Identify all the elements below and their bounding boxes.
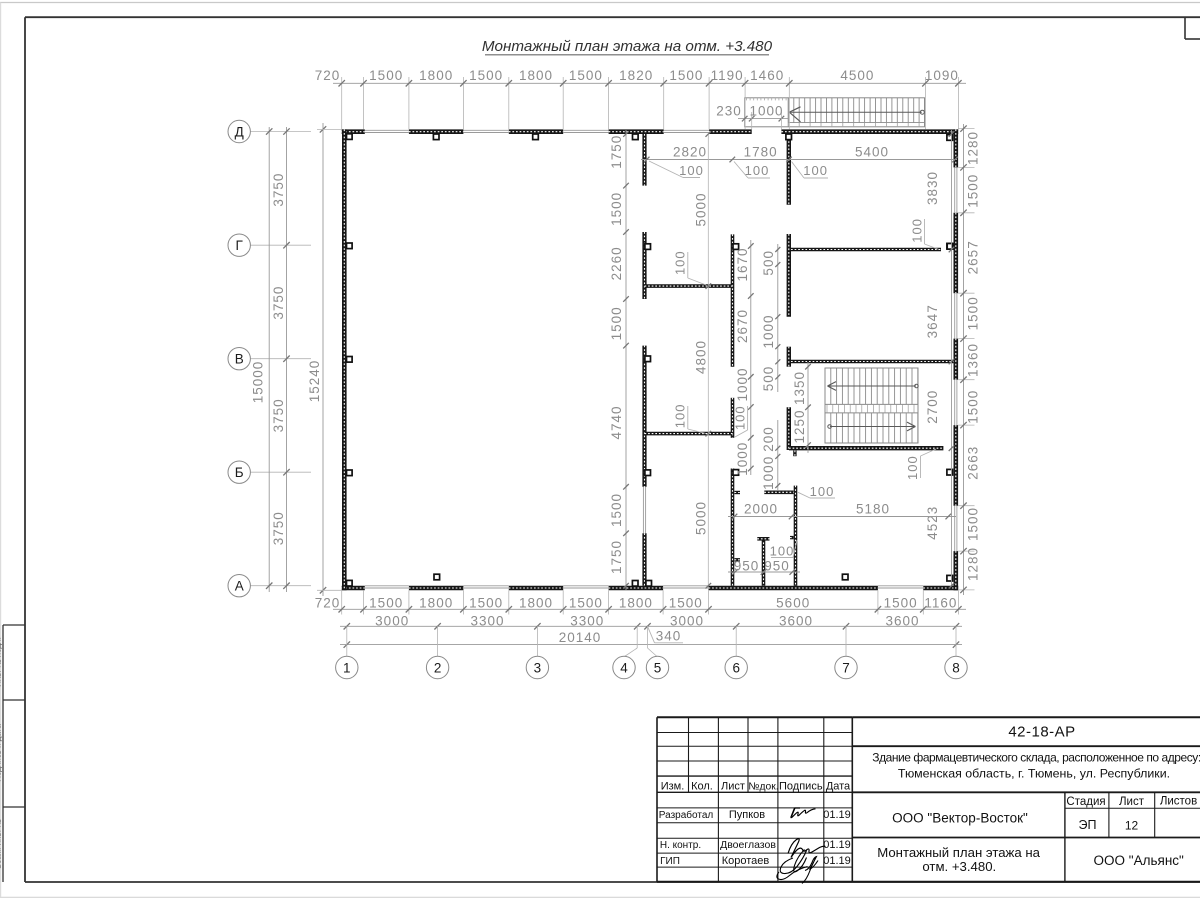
svg-text:200: 200 — [761, 426, 776, 452]
svg-text:100: 100 — [910, 218, 925, 243]
svg-text:1460: 1460 — [750, 68, 784, 83]
svg-text:1780: 1780 — [744, 145, 778, 160]
svg-text:2670: 2670 — [735, 309, 750, 343]
svg-text:А: А — [235, 579, 244, 594]
svg-text:1280: 1280 — [966, 131, 981, 165]
svg-text:1500: 1500 — [609, 306, 624, 340]
svg-text:1750: 1750 — [609, 135, 624, 169]
svg-text:8: 8 — [952, 660, 960, 675]
svg-text:1500: 1500 — [609, 493, 624, 527]
svg-text:Б: Б — [235, 465, 244, 480]
svg-text:ЭП: ЭП — [1079, 818, 1097, 832]
svg-text:1000: 1000 — [761, 456, 776, 490]
svg-text:Инв. № подл.: Инв. № подл. — [0, 637, 3, 687]
svg-text:1500: 1500 — [966, 174, 981, 208]
svg-text:2657: 2657 — [966, 240, 981, 274]
svg-text:01.19: 01.19 — [823, 809, 851, 821]
svg-text:Г: Г — [236, 238, 244, 253]
svg-text:100: 100 — [673, 404, 688, 429]
svg-text:2700: 2700 — [925, 390, 940, 424]
svg-text:Коротаев: Коротаев — [722, 855, 770, 867]
svg-text:5: 5 — [654, 660, 662, 675]
svg-text:Взам. инв. №: Взам. инв. № — [0, 819, 3, 869]
svg-text:4: 4 — [620, 660, 628, 675]
svg-text:3750: 3750 — [271, 398, 286, 432]
svg-text:1500: 1500 — [569, 68, 603, 83]
svg-text:230: 230 — [716, 103, 742, 118]
svg-text:3600: 3600 — [779, 613, 813, 628]
svg-text:5000: 5000 — [694, 192, 709, 226]
svg-text:1800: 1800 — [519, 68, 553, 83]
svg-text:4740: 4740 — [609, 405, 624, 439]
svg-text:Подпись и дата: Подпись и дата — [0, 724, 3, 782]
svg-text:4800: 4800 — [694, 340, 709, 374]
svg-text:3000: 3000 — [670, 613, 704, 628]
svg-text:1280: 1280 — [966, 547, 981, 581]
svg-text:1500: 1500 — [609, 192, 624, 226]
svg-text:1670: 1670 — [735, 247, 750, 281]
svg-text:100: 100 — [679, 163, 704, 178]
svg-text:100: 100 — [673, 250, 688, 275]
svg-text:1500: 1500 — [966, 296, 981, 330]
svg-text:1350: 1350 — [792, 371, 807, 405]
svg-text:ООО "Вектор-Восток": ООО "Вектор-Восток" — [892, 811, 1028, 826]
svg-text:100: 100 — [745, 163, 770, 178]
svg-text:5400: 5400 — [855, 145, 889, 160]
svg-text:Лист: Лист — [721, 780, 745, 792]
svg-text:ООО "Альянс": ООО "Альянс" — [1094, 853, 1184, 868]
svg-text:3830: 3830 — [925, 171, 940, 205]
svg-text:3000: 3000 — [375, 613, 409, 628]
svg-text:2: 2 — [434, 660, 442, 675]
svg-text:4523: 4523 — [925, 506, 940, 540]
svg-text:ГИП: ГИП — [660, 856, 680, 867]
svg-text:100: 100 — [733, 405, 748, 430]
svg-text:1500: 1500 — [884, 595, 918, 610]
svg-text:7: 7 — [842, 660, 850, 675]
svg-text:1500: 1500 — [669, 68, 703, 83]
svg-text:1: 1 — [343, 660, 351, 675]
svg-text:3647: 3647 — [925, 304, 940, 338]
svg-text:1190: 1190 — [711, 68, 744, 83]
svg-text:15000: 15000 — [251, 361, 266, 404]
svg-text:2000: 2000 — [744, 502, 778, 517]
svg-text:Подпись: Подпись — [779, 780, 823, 792]
svg-text:1800: 1800 — [619, 595, 653, 610]
svg-text:Двоеглазов: Двоеглазов — [720, 839, 776, 851]
svg-text:№док.: №док. — [748, 781, 778, 792]
svg-text:Монтажный план этажа на: Монтажный план этажа на — [877, 845, 1040, 860]
svg-text:5000: 5000 — [694, 501, 709, 535]
svg-text:01.19: 01.19 — [823, 839, 851, 851]
svg-text:1500: 1500 — [569, 595, 603, 610]
svg-text:отм. +3.480.: отм. +3.480. — [922, 859, 996, 874]
svg-text:3750: 3750 — [271, 286, 286, 320]
svg-text:1820: 1820 — [619, 68, 653, 83]
svg-text:3300: 3300 — [470, 613, 504, 628]
svg-text:3600: 3600 — [885, 613, 919, 628]
svg-text:100: 100 — [905, 455, 920, 480]
svg-text:2663: 2663 — [966, 446, 981, 480]
svg-text:1000: 1000 — [761, 314, 776, 348]
svg-text:1500: 1500 — [966, 390, 981, 424]
svg-text:20140: 20140 — [559, 630, 602, 645]
svg-text:1500: 1500 — [469, 68, 503, 83]
svg-text:3300: 3300 — [570, 613, 604, 628]
svg-text:1000: 1000 — [749, 103, 783, 118]
svg-text:3: 3 — [534, 660, 542, 675]
svg-text:100: 100 — [810, 484, 835, 499]
svg-text:1250: 1250 — [792, 409, 807, 443]
svg-text:Кол.: Кол. — [691, 780, 713, 792]
svg-text:5600: 5600 — [776, 595, 810, 610]
svg-text:5180: 5180 — [856, 502, 890, 517]
svg-text:500: 500 — [761, 366, 776, 392]
svg-text:15240: 15240 — [307, 360, 322, 403]
svg-text:1750: 1750 — [609, 540, 624, 574]
svg-text:1090: 1090 — [925, 68, 959, 83]
svg-text:1500: 1500 — [469, 595, 503, 610]
svg-text:Дата: Дата — [826, 780, 851, 792]
svg-text:100: 100 — [803, 163, 828, 178]
svg-text:Листов: Листов — [1160, 795, 1197, 807]
svg-text:42-18-АР: 42-18-АР — [1008, 724, 1075, 741]
svg-text:01.19: 01.19 — [823, 855, 851, 867]
svg-text:4500: 4500 — [840, 68, 874, 83]
svg-text:720: 720 — [315, 68, 341, 83]
svg-text:Изм.: Изм. — [661, 780, 685, 792]
svg-text:12: 12 — [1125, 819, 1139, 833]
svg-text:Здание фармацевтического склад: Здание фармацевтического склада, располо… — [872, 751, 1200, 765]
svg-text:950: 950 — [764, 559, 790, 574]
svg-text:1160: 1160 — [924, 595, 957, 610]
svg-text:1800: 1800 — [419, 595, 453, 610]
svg-text:340: 340 — [656, 629, 682, 644]
svg-text:1500: 1500 — [669, 595, 703, 610]
svg-text:1800: 1800 — [419, 68, 453, 83]
svg-text:Пупков: Пупков — [729, 809, 765, 821]
svg-text:В: В — [235, 352, 244, 367]
svg-text:1000: 1000 — [735, 367, 750, 401]
svg-text:1500: 1500 — [369, 68, 403, 83]
svg-text:6: 6 — [732, 660, 740, 675]
svg-text:720: 720 — [315, 595, 341, 610]
svg-text:1500: 1500 — [966, 507, 981, 541]
svg-text:1500: 1500 — [369, 595, 403, 610]
svg-text:Д: Д — [235, 124, 244, 139]
svg-text:1000: 1000 — [735, 442, 750, 476]
svg-text:Монтажный план этажа на отм. +: Монтажный план этажа на отм. +3.480 — [482, 38, 773, 55]
svg-text:Н. контр.: Н. контр. — [660, 840, 701, 851]
svg-text:3750: 3750 — [271, 511, 286, 545]
svg-text:Тюменская область, г. Тюмень,: Тюменская область, г. Тюмень, ул. Респуб… — [898, 767, 1170, 781]
svg-text:Разработал: Разработал — [659, 809, 714, 821]
svg-text:1360: 1360 — [966, 343, 981, 377]
svg-text:950: 950 — [734, 559, 760, 574]
svg-text:Лист: Лист — [1119, 796, 1145, 808]
svg-text:500: 500 — [761, 250, 776, 276]
svg-text:1800: 1800 — [519, 595, 553, 610]
svg-text:3750: 3750 — [271, 173, 286, 207]
svg-text:2820: 2820 — [673, 145, 707, 160]
svg-text:2260: 2260 — [609, 246, 624, 280]
svg-text:100: 100 — [770, 544, 795, 559]
svg-text:Стадия: Стадия — [1066, 796, 1105, 808]
